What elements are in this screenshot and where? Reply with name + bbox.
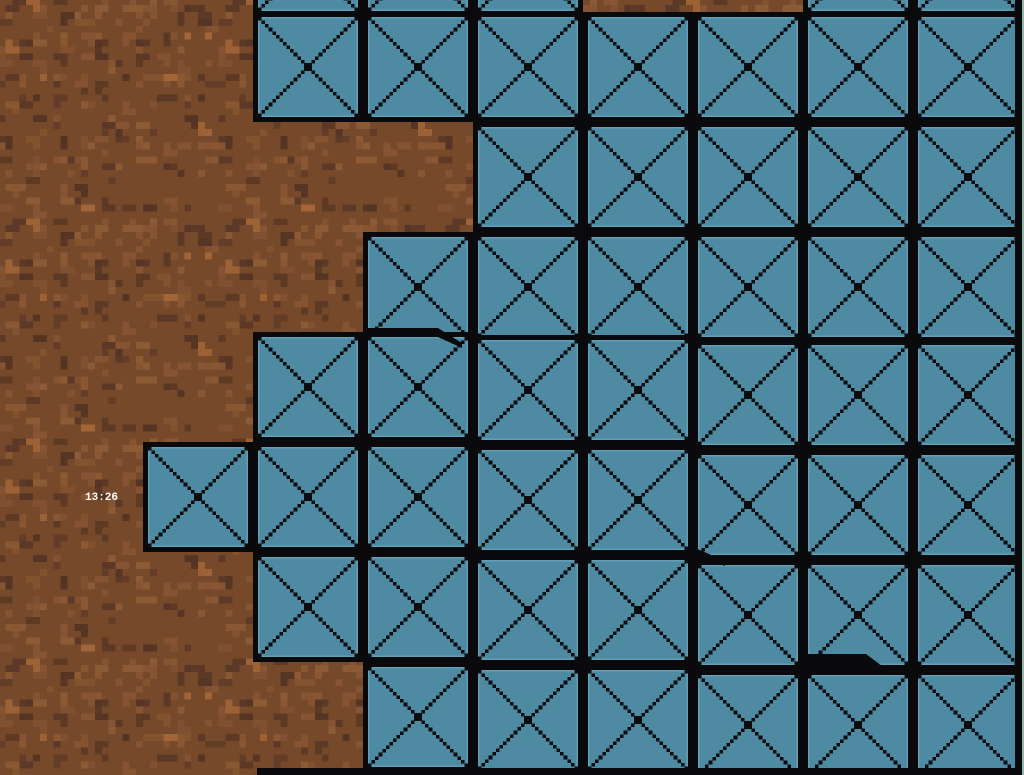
svg-text:13:26: 13:26: [85, 492, 118, 504]
